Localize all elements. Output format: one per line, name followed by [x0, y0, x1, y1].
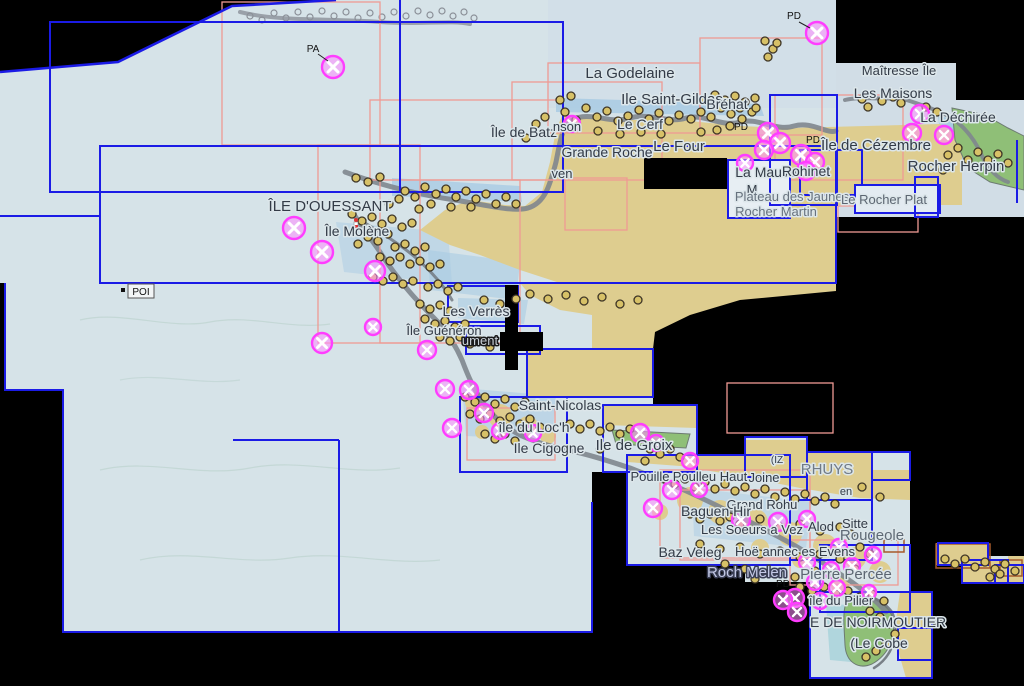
- buoy-icon: [821, 493, 829, 501]
- buoy-icon: [586, 420, 594, 428]
- buoy-icon: [598, 293, 606, 301]
- buoy-icon: [409, 277, 417, 285]
- buoy-icon: [376, 173, 384, 181]
- buoy-icon: [481, 430, 489, 438]
- buoy-icon: [421, 315, 429, 323]
- buoy-icon: [427, 200, 435, 208]
- buoy-icon: [941, 555, 949, 563]
- buoy-icon: [411, 247, 419, 255]
- anchorage-symbol: [460, 381, 478, 399]
- buoy-icon: [858, 483, 866, 491]
- buoy-icon: [831, 500, 839, 508]
- buoy-icon: [432, 190, 440, 198]
- buoy-icon: [386, 257, 394, 265]
- place-label: La Godelaine: [585, 65, 674, 82]
- buoy-icon: [971, 563, 979, 571]
- place-label: Plateau des Jaunes: [735, 189, 850, 204]
- buoy-icon: [576, 425, 584, 433]
- place-label: RHUYS: [801, 461, 854, 478]
- buoy-icon: [482, 190, 490, 198]
- buoy-icon: [994, 150, 1002, 158]
- buoy-icon: [526, 290, 534, 298]
- buoy-icon: [582, 104, 590, 112]
- poi-label: POI: [132, 287, 149, 298]
- buoy-icon: [416, 300, 424, 308]
- buoy-icon: [562, 291, 570, 299]
- buoy-icon: [634, 296, 642, 304]
- place-label: Ile de Groix: [596, 437, 673, 454]
- buoy-icon: [408, 219, 416, 227]
- buoy-icon: [567, 92, 575, 100]
- symbol-label: PD: [806, 135, 820, 146]
- place-label: Île de Cézembre: [820, 137, 931, 154]
- buoy-icon: [481, 393, 489, 401]
- place-label: Poulleu Haut: [673, 469, 748, 484]
- buoy-icon: [389, 273, 397, 281]
- buoy-icon: [713, 126, 721, 134]
- buoy-icon: [593, 113, 601, 121]
- chart-land: [603, 405, 697, 428]
- buoy-icon: [388, 215, 396, 223]
- buoy-icon: [876, 493, 884, 501]
- buoy-icon: [606, 423, 614, 431]
- anchorage-symbol: [443, 419, 461, 437]
- anchorage-symbol: [365, 261, 385, 281]
- place-label: Île de Batz: [490, 124, 557, 140]
- place-label: Roch Melen: [707, 564, 787, 581]
- place-label: Baguen Hir: [681, 503, 751, 519]
- buoy-icon: [981, 558, 989, 566]
- buoy-icon: [401, 187, 409, 195]
- symbol-label: PD: [734, 122, 748, 133]
- buoy-icon: [447, 203, 455, 211]
- place-label: (IZ: [771, 455, 783, 466]
- anchorage-symbol: [283, 217, 305, 239]
- buoy-icon: [781, 488, 789, 496]
- buoy-icon: [951, 560, 959, 568]
- place-label: Saint-Nicolas: [519, 397, 601, 413]
- buoy-icon: [954, 144, 962, 152]
- buoy-icon: [446, 337, 454, 345]
- no-chart-patch: [644, 158, 727, 189]
- buoy-icon: [580, 297, 588, 305]
- buoy-icon: [697, 108, 705, 116]
- anchorage-symbol: [865, 547, 881, 563]
- symbol-label: PA: [307, 44, 320, 55]
- buoy-icon: [761, 485, 769, 493]
- buoy-icon: [791, 573, 799, 581]
- place-label: Le Rocher Plat: [841, 192, 927, 207]
- buoy-icon: [687, 115, 695, 123]
- anchorage-symbol: [311, 241, 333, 263]
- buoy-icon: [773, 39, 781, 47]
- buoy-icon: [391, 243, 399, 251]
- buoy-icon: [862, 653, 870, 661]
- place-label: nson: [553, 119, 581, 134]
- place-label: Rougeole: [840, 527, 904, 544]
- buoy-icon: [406, 260, 414, 268]
- buoy-icon: [707, 113, 715, 121]
- anchorage-symbol: [806, 22, 828, 44]
- buoy-icon: [864, 103, 872, 111]
- place-label: île du Loc'h: [497, 419, 569, 435]
- buoy-icon: [416, 257, 424, 265]
- buoy-icon: [462, 187, 470, 195]
- place-label: Les Maisons: [854, 85, 933, 101]
- place-label: Le Cerf: [617, 116, 663, 132]
- buoy-icon: [415, 205, 423, 213]
- buoy-icon: [665, 117, 673, 125]
- buoy-icon: [697, 128, 705, 136]
- anchorage-symbol: [418, 341, 436, 359]
- buoy-icon: [512, 200, 520, 208]
- place-label: Les Verrès: [443, 303, 510, 319]
- buoy-icon: [399, 280, 407, 288]
- buoy-icon: [1001, 560, 1009, 568]
- buoy-icon: [596, 427, 604, 435]
- buoy-icon: [501, 395, 509, 403]
- chart-plotter-window: PAPDPDPDPDLa GodelaineIle Saint-GildasBr…: [0, 0, 1024, 686]
- buoy-icon: [401, 240, 409, 248]
- place-label: Baz Veleg: [658, 544, 721, 560]
- buoy-icon: [411, 193, 419, 201]
- buoy-icon: [426, 305, 434, 313]
- place-label: en: [840, 486, 852, 498]
- buoy-icon: [641, 457, 649, 465]
- place-label: Pouille: [630, 469, 669, 484]
- buoy-icon: [424, 283, 432, 291]
- map-canvas[interactable]: PAPDPDPDPDLa GodelaineIle Saint-GildasBr…: [0, 0, 1024, 686]
- anchorage-symbol: [755, 141, 773, 159]
- buoy-icon: [541, 113, 549, 121]
- buoy-icon: [603, 107, 611, 115]
- place-label: ÎLE D'OUESSANT: [268, 198, 392, 215]
- lighthouse-icon: [354, 218, 358, 222]
- buoy-icon: [466, 410, 474, 418]
- buoy-icon: [492, 200, 500, 208]
- buoy-icon: [1004, 159, 1012, 167]
- place-label: Île Molène: [324, 223, 390, 239]
- buoy-icon: [442, 185, 450, 193]
- buoy-icon: [761, 37, 769, 45]
- anchorage-symbol: [682, 453, 698, 469]
- buoy-icon: [751, 94, 759, 102]
- anchorage-symbol: [312, 333, 332, 353]
- place-label: Hoë annec es Evens: [735, 544, 855, 559]
- anchorage-symbol: [475, 404, 493, 422]
- anchorage-symbol: [644, 499, 662, 517]
- buoy-icon: [396, 253, 404, 261]
- buoy-icon: [376, 253, 384, 261]
- buoy-icon: [364, 178, 372, 186]
- buoy-icon: [354, 240, 362, 248]
- buoy-icon: [491, 400, 499, 408]
- buoy-icon: [974, 148, 982, 156]
- buoy-icon: [444, 287, 452, 295]
- buoy-icon: [811, 497, 819, 505]
- buoy-icon: [561, 108, 569, 116]
- place-label: ument: [462, 333, 499, 348]
- place-label: Joine: [748, 470, 779, 485]
- place-label: Alod: [808, 519, 834, 534]
- buoy-icon: [616, 300, 624, 308]
- place-label: Rocher Herpin: [908, 158, 1005, 175]
- buoy-icon: [398, 223, 406, 231]
- place-label: Le Four: [653, 138, 705, 155]
- buoy-icon: [502, 193, 510, 201]
- no-chart-patch: [500, 332, 543, 351]
- place-label: Les Soeurs a Vez: [701, 522, 803, 537]
- buoy-icon: [856, 543, 864, 551]
- buoy-icon: [426, 263, 434, 271]
- buoy-icon: [472, 195, 480, 203]
- place-label: Maîtresse Île: [862, 63, 936, 78]
- buoy-icon: [556, 96, 564, 104]
- buoy-icon: [675, 111, 683, 119]
- place-label: Bréhat: [706, 96, 747, 112]
- buoy-icon: [421, 243, 429, 251]
- place-label: Rohinet: [782, 163, 830, 179]
- place-label: Grande Roche: [561, 144, 652, 160]
- place-label: Ile Cigogne: [514, 440, 585, 456]
- buoy-icon: [594, 127, 602, 135]
- buoy-icon: [731, 487, 739, 495]
- poi-dot: [121, 288, 125, 292]
- buoy-icon: [880, 597, 888, 605]
- anchorage-symbol: [788, 603, 806, 621]
- place-label: ven: [552, 166, 573, 181]
- buoy-icon: [467, 203, 475, 211]
- buoy-icon: [726, 122, 734, 130]
- buoy-icon: [352, 174, 360, 182]
- place-label: île du Pilier: [808, 593, 874, 608]
- place-label: E DE NOIRMOUTIER: [810, 614, 946, 630]
- place-label: (Le Cobe: [850, 635, 908, 651]
- place-label: Pierre Percée: [800, 566, 892, 583]
- anchorage-symbol: [935, 126, 953, 144]
- place-label: La Déchirée: [920, 109, 996, 125]
- buoy-icon: [961, 555, 969, 563]
- anchorage-symbol: [436, 380, 454, 398]
- buoy-icon: [986, 573, 994, 581]
- buoy-icon: [434, 280, 442, 288]
- buoy-icon: [452, 193, 460, 201]
- place-label: Rocher Martin: [735, 204, 817, 219]
- chart-land: [527, 349, 653, 397]
- no-chart-patch: [956, 63, 1024, 100]
- buoy-icon: [996, 570, 1004, 578]
- buoy-icon: [512, 295, 520, 303]
- buoy-icon: [764, 53, 772, 61]
- buoy-icon: [395, 195, 403, 203]
- buoy-icon: [1011, 567, 1019, 575]
- buoy-icon: [436, 260, 444, 268]
- buoy-icon: [544, 295, 552, 303]
- symbol-label: PD: [787, 11, 801, 22]
- buoy-icon: [801, 490, 809, 498]
- anchorage-symbol: [365, 319, 381, 335]
- buoy-icon: [711, 485, 719, 493]
- buoy-icon: [752, 104, 760, 112]
- buoy-icon: [454, 283, 462, 291]
- buoy-icon: [421, 183, 429, 191]
